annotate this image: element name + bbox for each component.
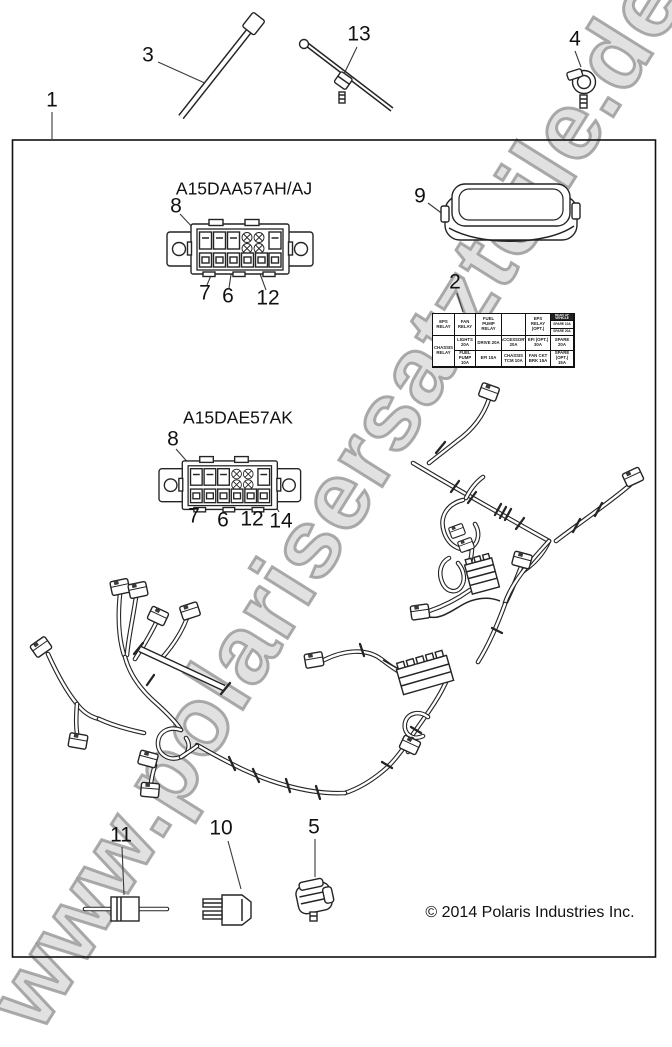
fuse-cell: CHASSIS TCM 10A — [502, 351, 526, 367]
wiring-harness — [30, 382, 645, 799]
fuse-cell: EFI 10A — [476, 351, 502, 367]
fuse-mini-cell: SPARE 20A — [551, 329, 573, 335]
callout-13: 13 — [347, 24, 370, 45]
callout-8b: 8 — [167, 429, 179, 450]
relay-block — [463, 553, 499, 594]
fuse-cell: ACCESSORY 20A — [502, 336, 526, 351]
part-number-top: A15DAA57AH/AJ — [176, 179, 312, 200]
fuse-cell: FUEL PUMP 10A — [455, 351, 476, 367]
clamp-item — [566, 68, 595, 108]
callout-6a: 6 — [222, 286, 234, 307]
callout-leader-lines — [52, 47, 581, 895]
callout-9: 9 — [414, 186, 426, 207]
fuse-cell: DRIVE 20A — [476, 336, 502, 351]
callout-12a: 12 — [256, 288, 279, 309]
diagram-line-art — [0, 0, 672, 974]
callout-12b: 12 — [240, 509, 263, 530]
callout-7b: 7 — [188, 506, 200, 527]
fuse-cell: FAN RELAY — [455, 314, 476, 336]
fuse-cell: LIGHTS 20A — [455, 336, 476, 351]
retainer-item — [300, 40, 394, 112]
fuse-panel-table: EPS RELAY FAN RELAY FUEL PUMP RELAY EPS … — [432, 313, 575, 368]
fuse-box-cover — [441, 184, 580, 241]
callout-14: 14 — [269, 511, 292, 532]
fuse-cell-stack: REAR OF VEHICLE SPARE 10A SPARE 20A — [551, 314, 574, 336]
fuse-block-connector-top — [167, 220, 313, 277]
callout-8a: 8 — [170, 196, 182, 217]
callout-7a: 7 — [199, 283, 211, 304]
callout-2: 2 — [449, 272, 461, 293]
fuse-block-connector-bottom — [159, 457, 301, 512]
fuse-mini-cell: SPARE 10A — [551, 321, 573, 328]
fuse-cell: SPARE 20A — [551, 336, 574, 351]
callout-5: 5 — [308, 817, 320, 838]
copyright-notice: © 2014 Polaris Industries Inc. — [425, 904, 634, 922]
sensor-connector-item — [294, 876, 336, 921]
diode-item — [85, 897, 167, 921]
fuse-cell: FAN CKT BRK 15A — [526, 351, 551, 367]
cable-tie-item — [181, 12, 265, 117]
fuse-cell: EPS RELAY (OPT.) — [526, 314, 551, 336]
fuse-cell: EFI (OPT.) 30A — [526, 336, 551, 351]
fuse-cell — [502, 314, 526, 336]
callout-10: 10 — [209, 818, 232, 839]
callout-4: 4 — [569, 29, 581, 50]
fuse-cell: CHASSIS RELAY — [433, 336, 455, 367]
fuse-cell: FUEL PUMP RELAY — [476, 314, 502, 336]
fuse-cell: SPARE (OPT.) 15A — [551, 351, 574, 367]
callout-3: 3 — [142, 45, 154, 66]
fuse-cell: EPS RELAY — [433, 314, 455, 336]
callout-6b: 6 — [217, 510, 229, 531]
part-number-bottom: A15DAE57AK — [183, 408, 293, 429]
parts-diagram-page: { "watermark": "www.polarisersatzteile.d… — [0, 0, 672, 974]
callout-11: 11 — [110, 825, 132, 846]
kit-bounding-box — [13, 140, 656, 957]
plug-item — [203, 895, 251, 925]
fuse-mini-cell: REAR OF VEHICLE — [551, 314, 573, 321]
callout-1: 1 — [46, 90, 58, 111]
